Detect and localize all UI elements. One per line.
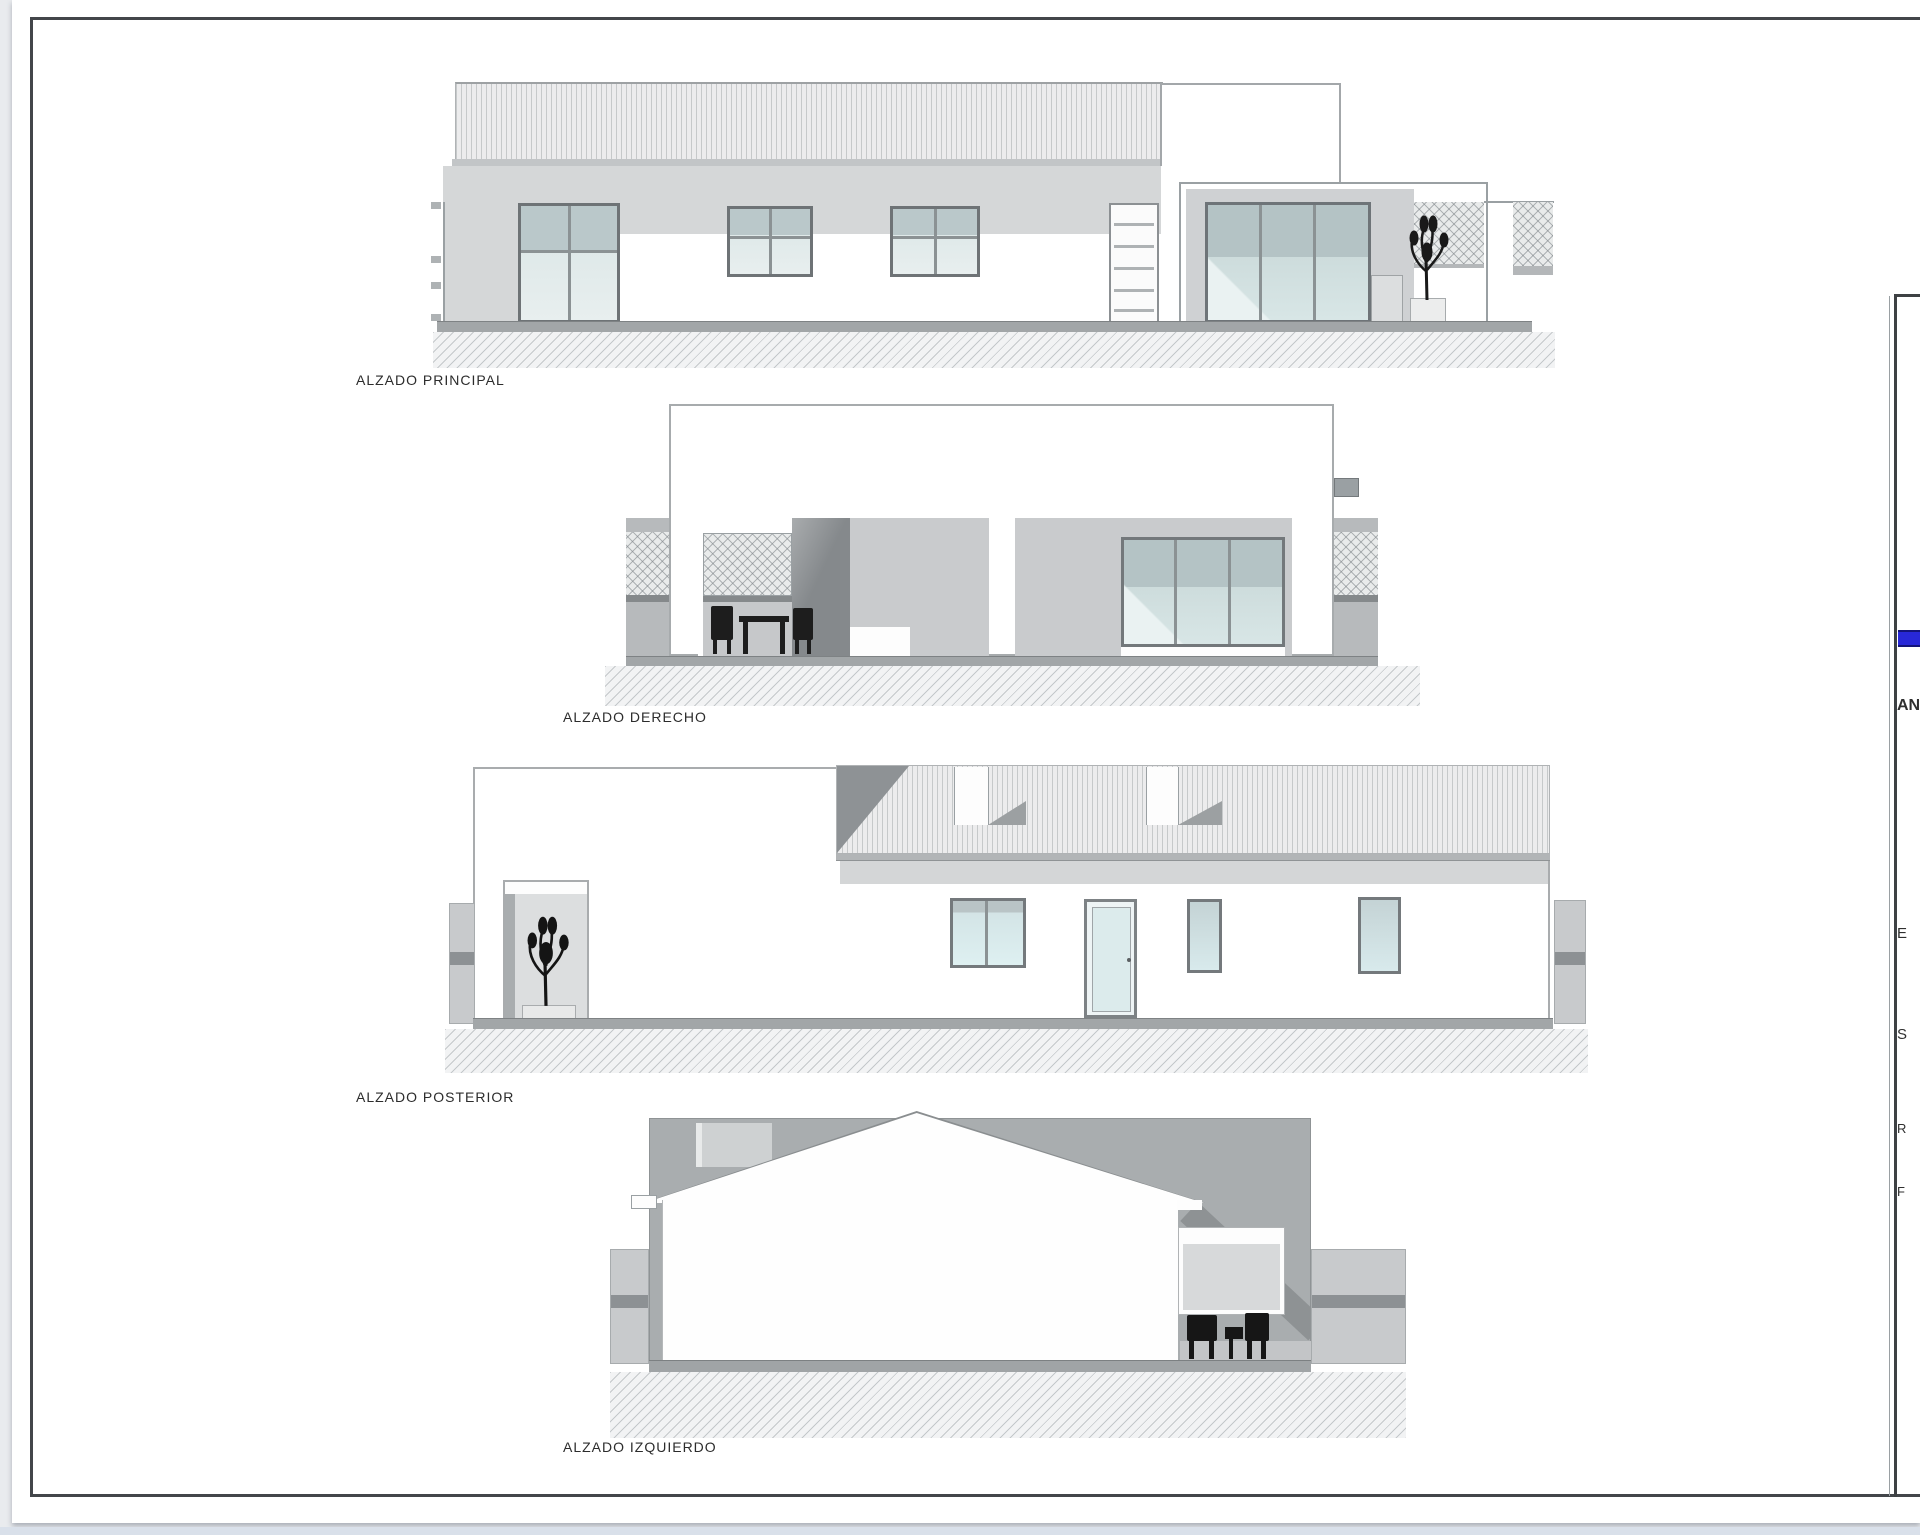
window-mullion xyxy=(1313,205,1316,320)
izquierdo-left-fence xyxy=(610,1249,649,1364)
derecho-sliding-door xyxy=(1121,537,1285,647)
fence-knob xyxy=(431,202,441,209)
fence-cap xyxy=(626,518,669,532)
louver-bar xyxy=(1114,267,1154,270)
title-block-accent-bar xyxy=(1898,630,1920,647)
window-mullion xyxy=(934,209,937,274)
fence-rail xyxy=(1555,952,1585,965)
izquierdo-right-soffit xyxy=(1177,1200,1202,1210)
elevation-posterior xyxy=(440,755,1590,1075)
elevation-derecho xyxy=(605,395,1420,710)
elevation-derecho-label: ALZADO DERECHO xyxy=(563,709,707,725)
fence-rail xyxy=(626,595,669,602)
page-bottom-strip xyxy=(0,1527,1920,1535)
principal-right-fence xyxy=(1513,202,1553,266)
principal-porch-slider xyxy=(1205,202,1371,323)
principal-louver-door xyxy=(1109,203,1159,323)
louver-bar xyxy=(1114,223,1154,226)
title-block-fragment-3: S xyxy=(1897,1026,1907,1043)
lattice-texture xyxy=(704,534,791,595)
elevation-izquierdo xyxy=(600,1105,1410,1445)
title-block-fragment-2: E xyxy=(1897,925,1907,942)
principal-window-3 xyxy=(890,206,980,277)
drawing-sheet-page: ALZADO PRINCIPAL xyxy=(0,0,1920,1535)
posterior-left-fence xyxy=(449,903,475,1024)
window-mullion xyxy=(730,236,810,239)
principal-roof xyxy=(455,82,1163,162)
title-block-fragment-5: F xyxy=(1897,1184,1905,1199)
fence-rail xyxy=(1334,595,1378,602)
principal-right-fence-base xyxy=(1513,266,1553,275)
window-mullion xyxy=(985,901,988,965)
izquierdo-right-fence xyxy=(1311,1249,1406,1364)
parapet-top-strip xyxy=(1183,1232,1280,1244)
title-block-top-edge xyxy=(1894,294,1920,297)
principal-ground-hatch xyxy=(433,332,1555,368)
derecho-vent xyxy=(1334,478,1359,497)
principal-sliding-door-1 xyxy=(518,203,620,323)
furniture-silhouette xyxy=(1185,1305,1271,1363)
fence-cap xyxy=(1334,518,1378,532)
backdrop-window xyxy=(696,1123,772,1167)
furniture-silhouette xyxy=(705,598,823,656)
posterior-chimney-slot-1 xyxy=(954,767,989,825)
window-mullion xyxy=(769,209,772,274)
fence-knob xyxy=(431,256,441,263)
louver-bar xyxy=(1114,245,1154,248)
derecho-mid-wall-light xyxy=(850,627,910,656)
title-block-border xyxy=(1894,294,1897,1497)
fence-knob xyxy=(431,314,441,321)
fence-rail xyxy=(1312,1295,1405,1308)
fence-knob xyxy=(431,282,441,289)
window-mullion xyxy=(568,206,571,320)
title-block-border-light xyxy=(1889,296,1890,1496)
plant-silhouette xyxy=(1402,212,1452,302)
window-mullion xyxy=(1174,540,1177,644)
posterior-wall-shadow xyxy=(840,861,1548,884)
title-block-edge xyxy=(1880,0,1920,1535)
window-mullion xyxy=(521,250,617,253)
izquierdo-left-eave-overhang xyxy=(631,1195,657,1209)
title-block-fragment-4: R xyxy=(1897,1121,1906,1136)
lattice-texture xyxy=(1334,532,1378,595)
fence-rail xyxy=(450,952,474,965)
izquierdo-wall xyxy=(662,1200,1178,1364)
derecho-ground-hatch xyxy=(605,666,1420,706)
elevation-posterior-label: ALZADO POSTERIOR xyxy=(356,1089,514,1105)
posterior-window-1 xyxy=(950,898,1026,968)
window-mullion xyxy=(1228,540,1231,644)
louver-bar xyxy=(1114,309,1154,312)
lattice-texture xyxy=(1513,202,1553,266)
posterior-door xyxy=(1084,899,1137,1018)
elevation-izquierdo-label: ALZADO IZQUIERDO xyxy=(563,1439,717,1455)
window-mullion xyxy=(893,236,977,239)
porch-side-table xyxy=(1371,275,1403,325)
posterior-window-narrow-1 xyxy=(1187,899,1222,973)
fence-rail xyxy=(611,1295,648,1308)
recess-top-band xyxy=(505,882,587,894)
window-mullion xyxy=(1259,205,1262,320)
title-block-fragment-1: AN xyxy=(1897,697,1920,715)
elevation-principal xyxy=(430,60,1572,380)
posterior-eave xyxy=(836,854,1550,861)
door-pane xyxy=(1092,907,1131,1012)
izquierdo-ground-hatch xyxy=(610,1372,1406,1438)
derecho-porch-lattice xyxy=(703,533,792,596)
posterior-ground-hatch xyxy=(445,1029,1588,1073)
principal-wall-shade-left xyxy=(443,166,528,323)
izquierdo-parapet-box xyxy=(1179,1228,1284,1314)
elevation-principal-label: ALZADO PRINCIPAL xyxy=(356,372,505,388)
derecho-left-fence xyxy=(626,518,669,656)
posterior-window-narrow-2 xyxy=(1358,897,1401,974)
fence-base xyxy=(1334,602,1378,656)
posterior-chimney-slot-2 xyxy=(1146,767,1179,825)
lattice-texture xyxy=(626,532,669,595)
posterior-right-fence xyxy=(1554,900,1586,1024)
principal-left-fence-edge xyxy=(431,202,445,326)
derecho-door-sill xyxy=(1121,647,1285,656)
posterior-roof xyxy=(836,765,1550,854)
derecho-right-fence xyxy=(1334,518,1378,656)
louver-bar xyxy=(1114,289,1154,292)
door-handle xyxy=(1127,958,1131,962)
fence-base xyxy=(626,602,669,656)
plant-silhouette xyxy=(514,913,578,1008)
principal-window-2 xyxy=(727,206,813,277)
